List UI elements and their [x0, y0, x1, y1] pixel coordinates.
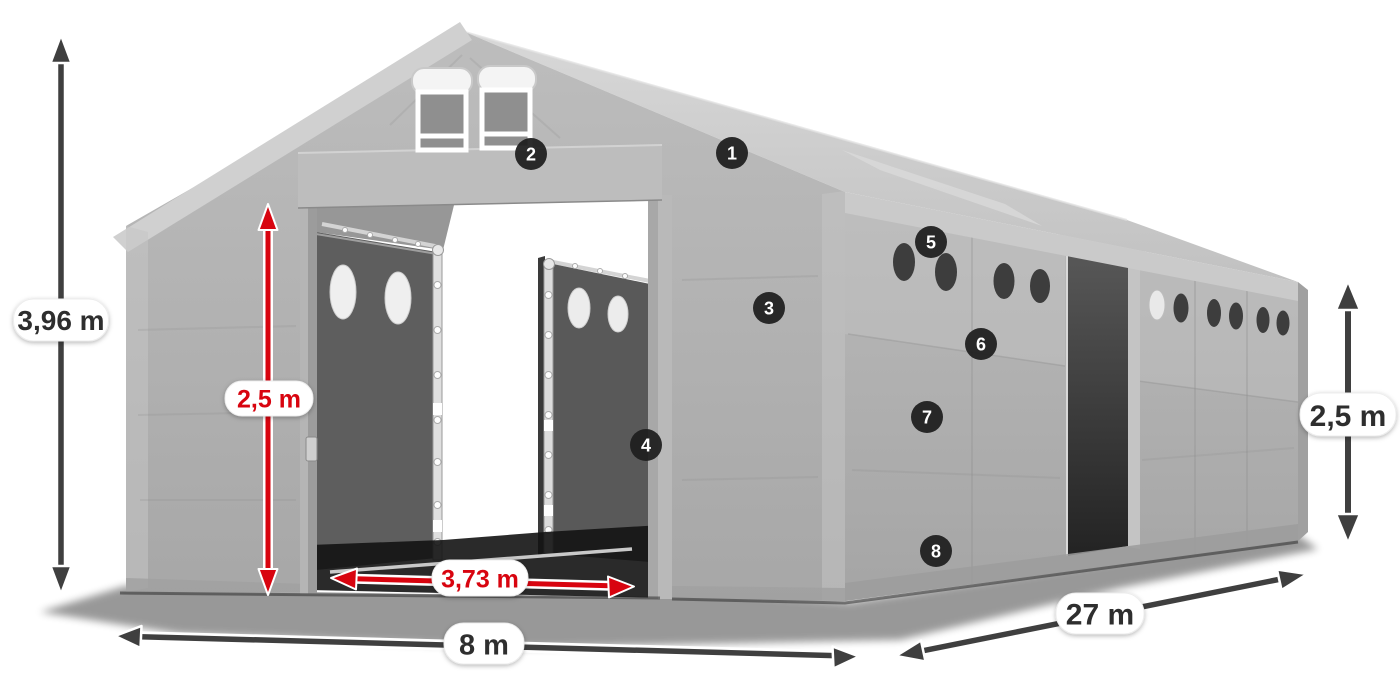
svg-text:1: 1 — [727, 143, 737, 163]
svg-text:4: 4 — [641, 435, 651, 455]
pole-sleeve — [544, 505, 553, 516]
entrance-header-beam — [298, 144, 662, 208]
svg-text:6: 6 — [976, 334, 986, 354]
dim-side-wall-height-label: 2,5 m — [1310, 400, 1387, 433]
front-corner-right — [822, 191, 845, 601]
dim-entrance-width-label: 3,73 m — [441, 566, 519, 594]
vent-frame-left — [418, 92, 466, 150]
pole-sleeve — [433, 403, 442, 415]
inner-partition-left — [316, 224, 444, 570]
dim-side-wall-height: 2,5 m — [1300, 281, 1396, 543]
callout-badge-6: 6 — [965, 328, 997, 360]
side-sliding-door-opening — [1060, 229, 1143, 556]
svg-text:2: 2 — [526, 144, 536, 164]
svg-text:8: 8 — [931, 541, 941, 561]
dim-entrance-inner-height-label: 2,5 m — [237, 386, 301, 414]
inner-partition-right — [538, 256, 650, 562]
door-latch — [306, 437, 317, 461]
pole-elbow-joint — [544, 259, 555, 270]
pole-sleeve — [544, 420, 553, 431]
pole-sleeve — [433, 520, 442, 532]
pole-elbow-joint — [433, 245, 444, 256]
dim-side-length-label: 27 m — [1066, 598, 1134, 631]
svg-text:3: 3 — [764, 298, 774, 318]
callout-badge-7: 7 — [911, 401, 943, 433]
dim-total-height-label: 3,96 m — [17, 305, 104, 336]
sliding-door-gap — [1067, 240, 1128, 556]
diagram-canvas: 3,96 m 2,5 m 3,73 m 8 m — [0, 0, 1400, 700]
front-corner-left — [126, 226, 148, 592]
dim-total-height: 3,96 m — [14, 35, 109, 594]
callout-badge-1: 1 — [716, 137, 748, 169]
front-entrance-interior — [298, 144, 672, 599]
sliding-door-panel-edge — [1128, 249, 1140, 549]
svg-text:5: 5 — [926, 232, 936, 252]
dim-front-width-label: 8 m — [459, 629, 509, 661]
callout-badge-8: 8 — [920, 535, 952, 567]
callout-badge-2: 2 — [515, 138, 547, 170]
tent-illustration — [113, 22, 1308, 603]
callout-badge-5: 5 — [915, 226, 947, 258]
vent-frame-right — [482, 90, 530, 148]
callout-badge-4: 4 — [630, 429, 662, 461]
tent-dimension-diagram: 3,96 m 2,5 m 3,73 m 8 m — [0, 0, 1400, 700]
svg-text:7: 7 — [922, 407, 932, 427]
callout-badge-3: 3 — [753, 292, 785, 324]
entrance-right-jamb — [648, 195, 672, 599]
